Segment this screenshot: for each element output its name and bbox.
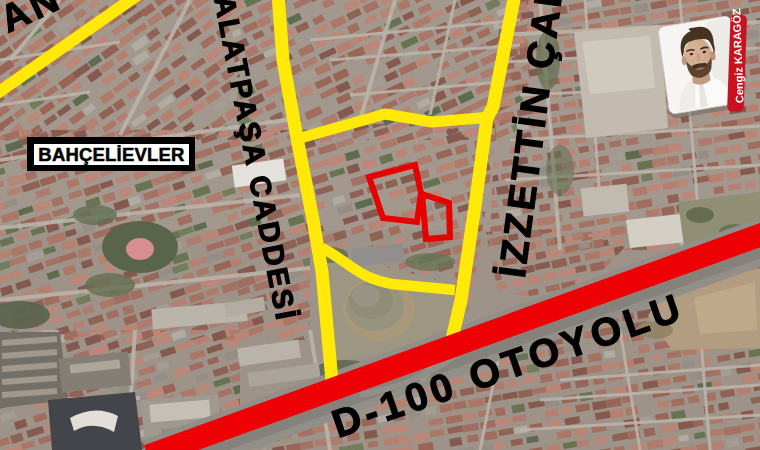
svg-text:BAHÇELİEVLER: BAHÇELİEVLER: [38, 144, 184, 165]
